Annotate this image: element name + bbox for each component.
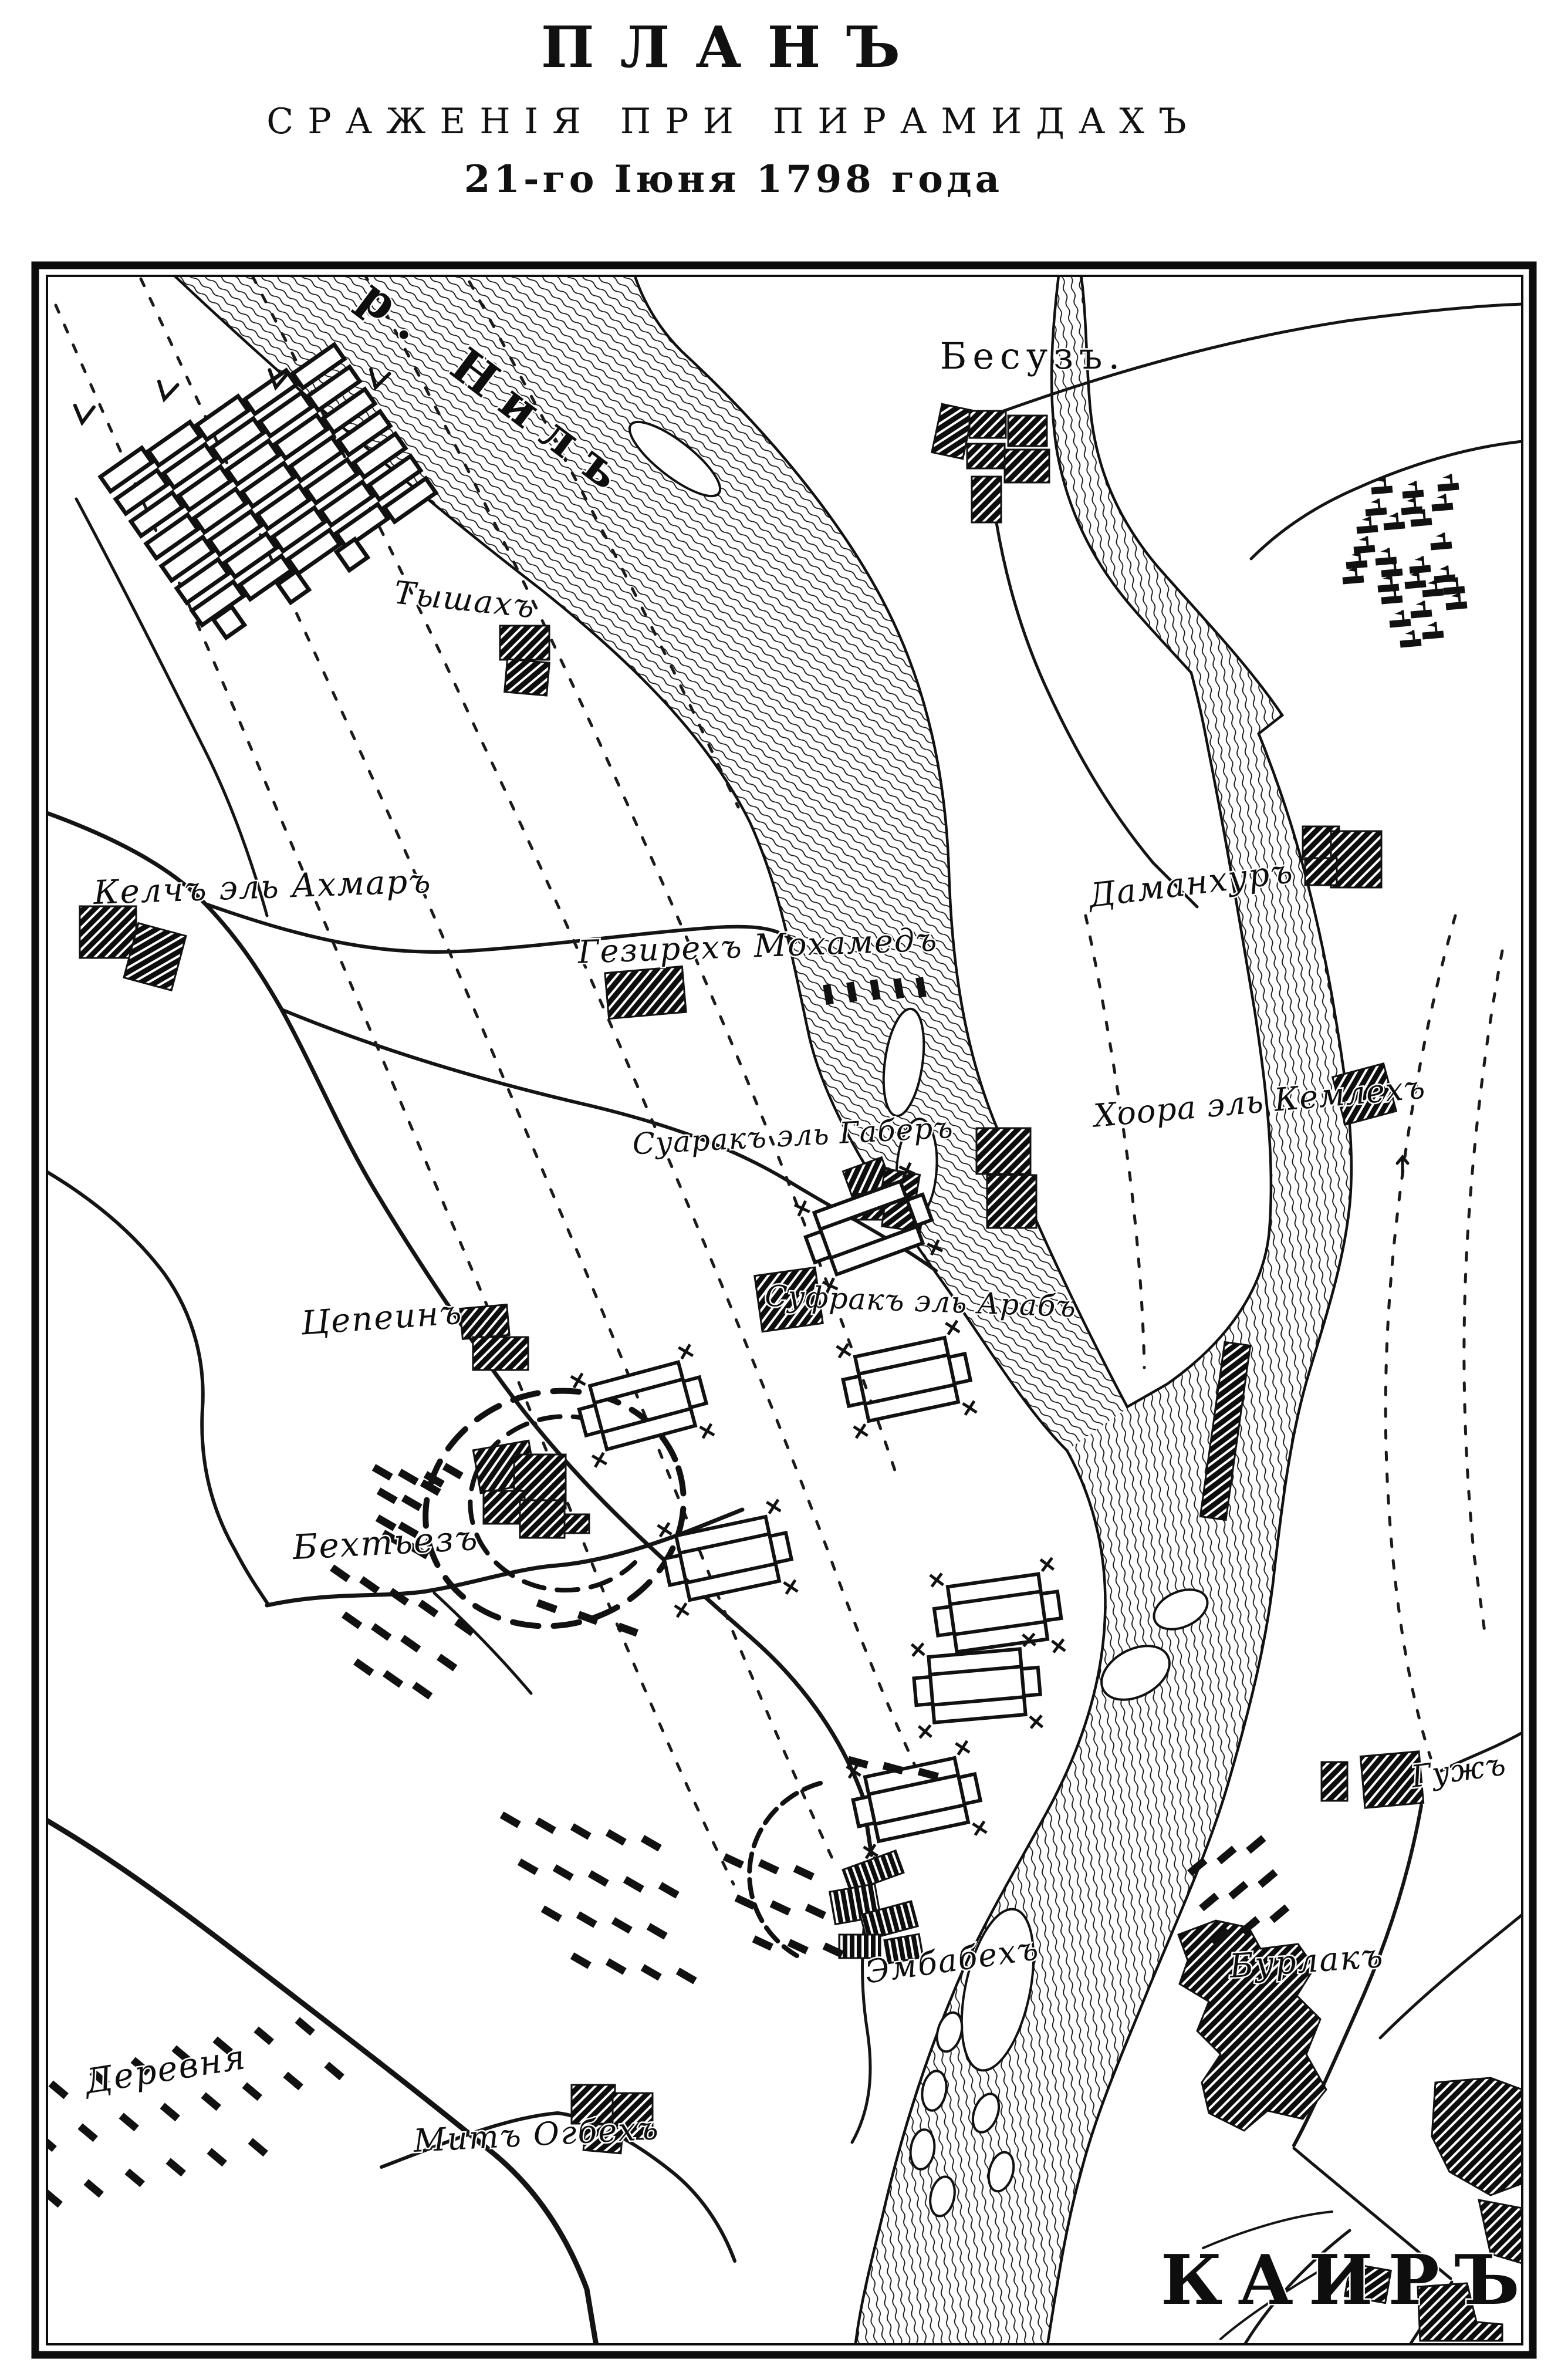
cavalry-bar <box>1216 1845 1236 1864</box>
square-face <box>914 1677 932 1705</box>
unit-bar <box>1410 565 1431 573</box>
village-block <box>1008 416 1047 446</box>
unit-bar <box>1411 518 1432 526</box>
village-behtiez <box>473 1440 589 1538</box>
cavalry-bar <box>676 1967 697 1984</box>
unit-bar <box>1366 507 1387 516</box>
corner-mark <box>956 1741 970 1755</box>
corner-mark <box>911 1643 924 1656</box>
unit-bar <box>1438 482 1459 491</box>
corner-mark <box>700 1424 714 1438</box>
infantry-square <box>570 1344 715 1467</box>
cavalry-bar <box>606 1958 627 1975</box>
corner-mark <box>767 1500 781 1514</box>
cavalry-bar <box>641 1835 662 1851</box>
village-block <box>505 659 550 696</box>
square-face <box>602 1409 695 1449</box>
corner-mark <box>1030 1716 1043 1729</box>
village-block <box>500 626 549 660</box>
village-block <box>972 477 1001 522</box>
corner-mark <box>837 1344 851 1358</box>
unit-cluster-cavalry-south-mass <box>500 1811 697 1984</box>
cavalry-bar <box>248 2138 268 2156</box>
road-left-winding <box>35 1165 269 1605</box>
village-block <box>967 444 1005 468</box>
village-embabeh <box>830 1851 923 1963</box>
cavalry-bar <box>400 1635 421 1652</box>
village-block <box>1331 831 1381 887</box>
mameluke-flag-unit <box>1399 630 1421 648</box>
cavalry-bar <box>48 2080 68 2099</box>
square-face <box>928 1649 1021 1674</box>
cavalry-bar <box>623 1876 644 1892</box>
infantry-square <box>836 1321 978 1439</box>
road-topright <box>1251 441 1522 559</box>
mameluke-flag-unit <box>1404 571 1426 589</box>
village-block <box>484 1491 525 1524</box>
map-subtitle: СРАЖЕНІЯ ПРИ ПИРАМИДАХЪ <box>0 101 1467 142</box>
cavalry-bar <box>793 1865 815 1880</box>
unit-bar <box>1378 583 1400 592</box>
cavalry-bar <box>207 2148 227 2166</box>
cavalry-bar <box>119 2112 138 2131</box>
cavalry-bar <box>570 1952 592 1969</box>
corner-mark <box>963 1401 977 1415</box>
village-block <box>80 906 136 958</box>
unit-bar <box>1371 485 1393 494</box>
cavalry-bar <box>500 1811 521 1828</box>
label-behtiez: Бехтьезъ <box>291 1518 479 1568</box>
road-east-border <box>1380 1915 1522 2038</box>
mameluke-flag-unit <box>1388 610 1411 628</box>
label-tyshah: Тышахъ <box>392 574 537 626</box>
unit-bar <box>1411 609 1432 618</box>
square-face <box>686 1564 779 1600</box>
cavalry-bar <box>42 2189 62 2208</box>
square-face <box>865 1385 958 1421</box>
cavalry-bar <box>1246 1835 1266 1854</box>
square-face <box>853 1797 875 1827</box>
cavalry-bar <box>324 2061 344 2080</box>
corner-mark <box>946 1321 960 1335</box>
unit-bar <box>1422 630 1444 639</box>
unit-bar <box>1390 619 1411 627</box>
cavalry-bar <box>442 1463 464 1479</box>
cavalry-bar <box>388 1588 409 1605</box>
cavalry-bar <box>165 2158 185 2176</box>
cavalry-bar <box>588 1870 609 1886</box>
route-island <box>1086 916 1144 1368</box>
corner-mark <box>930 1574 944 1587</box>
mameluke-flag-unit <box>1430 532 1452 551</box>
mameluke-flag-unit <box>1445 592 1467 610</box>
cavalry-bar <box>398 1469 419 1485</box>
village-block <box>987 1175 1036 1228</box>
unit-bar <box>1432 502 1454 511</box>
village-block <box>473 1337 528 1370</box>
square-face <box>934 1607 954 1635</box>
cavalry-bar <box>242 2082 262 2101</box>
cavalry-bar <box>617 1623 638 1637</box>
square-face <box>865 1758 958 1794</box>
village-block <box>520 1500 565 1538</box>
route-east-1 <box>1385 916 1455 1758</box>
corner-mark <box>1040 1558 1054 1571</box>
square-face <box>843 1376 865 1406</box>
cavalry-bar <box>770 1900 791 1915</box>
unit-cluster-cavalry-mid <box>536 1599 638 1637</box>
cavalry-bar <box>805 1904 826 1919</box>
cavalry-bar <box>383 1670 403 1688</box>
unit-bar <box>1403 490 1424 498</box>
corner-mark <box>678 1345 692 1359</box>
square-face <box>1022 1668 1040 1696</box>
cavalry-bar <box>353 1658 374 1676</box>
village-guzh <box>1322 1751 1424 1808</box>
cavalry-bar <box>641 1964 662 1980</box>
unit-bar <box>1401 506 1423 515</box>
cavalry-bar <box>83 2179 103 2198</box>
unit-bar <box>1354 545 1376 553</box>
cavalry-bar <box>647 1923 668 1939</box>
village-damanhur <box>1303 826 1381 887</box>
cavalry-bar <box>295 2017 315 2036</box>
corner-mark <box>592 1453 606 1467</box>
cavalry-bar <box>535 1817 556 1834</box>
cavalry-bar <box>1258 1869 1278 1888</box>
cavalry-bar <box>1269 1904 1289 1923</box>
village-block <box>1322 1762 1347 1801</box>
square-face <box>949 1354 971 1383</box>
cairo-town-main <box>1432 2078 1522 2195</box>
corner-mark <box>1052 1639 1066 1653</box>
unit-cluster-retreat-row-c <box>42 2138 268 2208</box>
label-khoora: Хоора эль Кемлехъ <box>1090 1068 1427 1135</box>
map-date: 21-го Іюня 1798 года <box>0 157 1467 201</box>
advance-arrow-icon <box>154 379 178 401</box>
map-title-block: ПЛАНЪ СРАЖЕНІЯ ПРИ ПИРАМИДАХЪ 21-го Іюня… <box>0 16 1467 201</box>
cavalry-bar <box>752 1935 773 1950</box>
cavalry-bar <box>606 1829 627 1845</box>
unit-bar <box>1384 521 1405 530</box>
cavalry-bar <box>160 2102 180 2121</box>
route-east-2 <box>1464 951 1502 1632</box>
mameluke-flag-unit <box>1345 551 1367 569</box>
unit-bar <box>1444 586 1465 595</box>
corner-mark <box>919 1725 932 1738</box>
label-derevnya: Деревня <box>80 2037 249 2102</box>
mameluke-flag-unit <box>1370 477 1393 495</box>
village-block <box>969 411 1006 438</box>
cavalry-bar <box>254 2026 273 2045</box>
cavalry-bar <box>412 1682 432 1699</box>
cavalry-bar <box>541 1905 562 1922</box>
cavalry-bar <box>1228 1881 1248 1899</box>
mameluke-flag-unit <box>1410 600 1432 619</box>
corner-mark <box>658 1523 672 1537</box>
cavalry-bar <box>553 1864 574 1881</box>
unit-bar <box>1431 541 1452 550</box>
cavalry-bar <box>377 1487 398 1504</box>
square-face <box>875 1805 968 1841</box>
unit-bar <box>1381 595 1403 604</box>
mameluke-flag-unit <box>1364 498 1387 517</box>
square-face <box>676 1517 769 1553</box>
unit-bar <box>1343 575 1364 584</box>
mameluke-flag-unit <box>1341 566 1364 585</box>
unit-bar <box>1357 525 1378 534</box>
corner-mark <box>571 1373 585 1388</box>
cavalry-bar <box>342 1611 362 1629</box>
village-block <box>976 1128 1030 1174</box>
cavalry-bar <box>758 1859 779 1874</box>
village-block <box>1305 858 1337 885</box>
cavalry-bar <box>124 2168 144 2187</box>
village-block <box>565 1514 589 1533</box>
cavalry-bar <box>1199 1892 1219 1911</box>
square-face <box>579 1405 602 1436</box>
mameluke-flag-unit <box>1356 516 1378 534</box>
square-face <box>770 1533 792 1562</box>
mameluke-flag-unit <box>1437 474 1459 492</box>
cavalry-bar <box>570 1823 592 1840</box>
unit-bar <box>1422 588 1444 597</box>
label-tsepein: Цепеинъ <box>299 1294 464 1343</box>
cavalry-bar <box>401 1494 423 1511</box>
mameluke-flag-unit <box>1408 556 1431 574</box>
unit-cluster-cavalry-embabeh <box>723 1853 844 1958</box>
village-tsepein <box>460 1305 528 1370</box>
label-besuz: Бесузъ. <box>940 335 1126 377</box>
unit-bar <box>1446 601 1468 610</box>
square-face <box>1041 1591 1061 1620</box>
cavalry-bar <box>77 2123 97 2142</box>
mameluke-flag-unit <box>1353 536 1375 554</box>
cavalry-bar <box>536 1599 557 1614</box>
embabeh-entrenchment <box>749 1783 820 1956</box>
cavalry-bar <box>437 1653 457 1671</box>
cavalry-bar <box>418 1599 438 1617</box>
square-face <box>948 1574 1041 1604</box>
battle-map: р. НилъБесузъ.ТышахъКелчъ эль АхмаръГези… <box>0 0 1568 2376</box>
village-kelch <box>80 906 186 990</box>
corner-mark <box>675 1603 689 1617</box>
corner-mark <box>784 1580 798 1594</box>
label-cairo: КАИРЪ. <box>1161 2240 1568 2320</box>
corner-mark <box>973 1821 987 1835</box>
map-content: р. НилъБесузъ.ТышахъКелчъ эль АхмаръГези… <box>35 267 1568 2355</box>
mameluke-flag-unit <box>1421 622 1444 640</box>
square-face <box>855 1338 948 1374</box>
village-gezireh <box>605 966 686 1018</box>
cavalry-bar <box>611 1917 633 1933</box>
village-tyshah <box>500 626 549 696</box>
village-block <box>605 966 686 1018</box>
village-block <box>460 1305 509 1339</box>
advance-arrow-icon <box>72 403 94 424</box>
mameluke-flag-unit <box>1401 481 1424 499</box>
square-face <box>959 1774 981 1804</box>
unit-bar <box>1405 580 1427 589</box>
cavalry-bar <box>658 1882 680 1898</box>
cavalry-bar <box>372 1464 393 1480</box>
square-face <box>664 1555 686 1585</box>
cavalry-bar <box>330 1564 350 1582</box>
north-arrow-icon <box>1397 1157 1408 1176</box>
cavalry-bar <box>359 1576 380 1594</box>
label-kelch: Келчъ эль Ахмаръ <box>92 862 432 912</box>
cavalry-bar <box>201 2092 221 2111</box>
cavalry-bar <box>576 1911 597 1928</box>
infantry-square <box>846 1741 988 1859</box>
village-block <box>1005 450 1049 482</box>
cavalry-bar <box>283 2071 303 2090</box>
square-face <box>684 1377 707 1408</box>
map-sheet: ПЛАНЪ СРАЖЕНІЯ ПРИ ПИРАМИДАХЪ 21-го Іюня… <box>0 0 1568 2376</box>
cavalry-bar <box>518 1858 539 1875</box>
unit-bar <box>1434 574 1456 583</box>
square-face <box>806 1231 830 1263</box>
map-title: ПЛАНЪ <box>0 16 1467 79</box>
cavalry-bar <box>371 1623 391 1641</box>
mameluke-flag-unit <box>1431 494 1453 512</box>
corner-mark <box>854 1424 868 1438</box>
unit-bar <box>1400 639 1422 647</box>
square-face <box>933 1697 1026 1722</box>
label-guzh: Гужъ <box>1408 1747 1508 1795</box>
village-besuz <box>932 404 1049 522</box>
